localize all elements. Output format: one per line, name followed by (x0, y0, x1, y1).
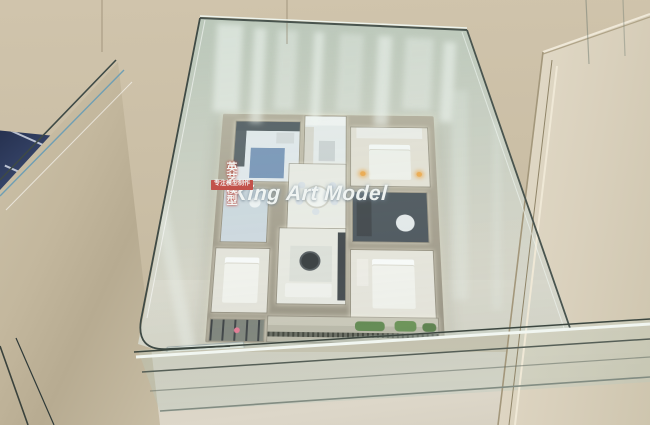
glass-reflection (310, 32, 325, 124)
glass-reflection (374, 36, 393, 127)
photo-canvas: King Art Model 英艺模型 服务地产品牌 专注模型制作 建筑面积: … (0, 0, 650, 425)
glass-reflection (213, 23, 244, 112)
glass-reflection (440, 42, 456, 123)
glass-reflection (336, 33, 364, 112)
glass-reflection (274, 30, 298, 111)
glass-reflection (402, 37, 434, 110)
glass-reflection (250, 28, 267, 123)
